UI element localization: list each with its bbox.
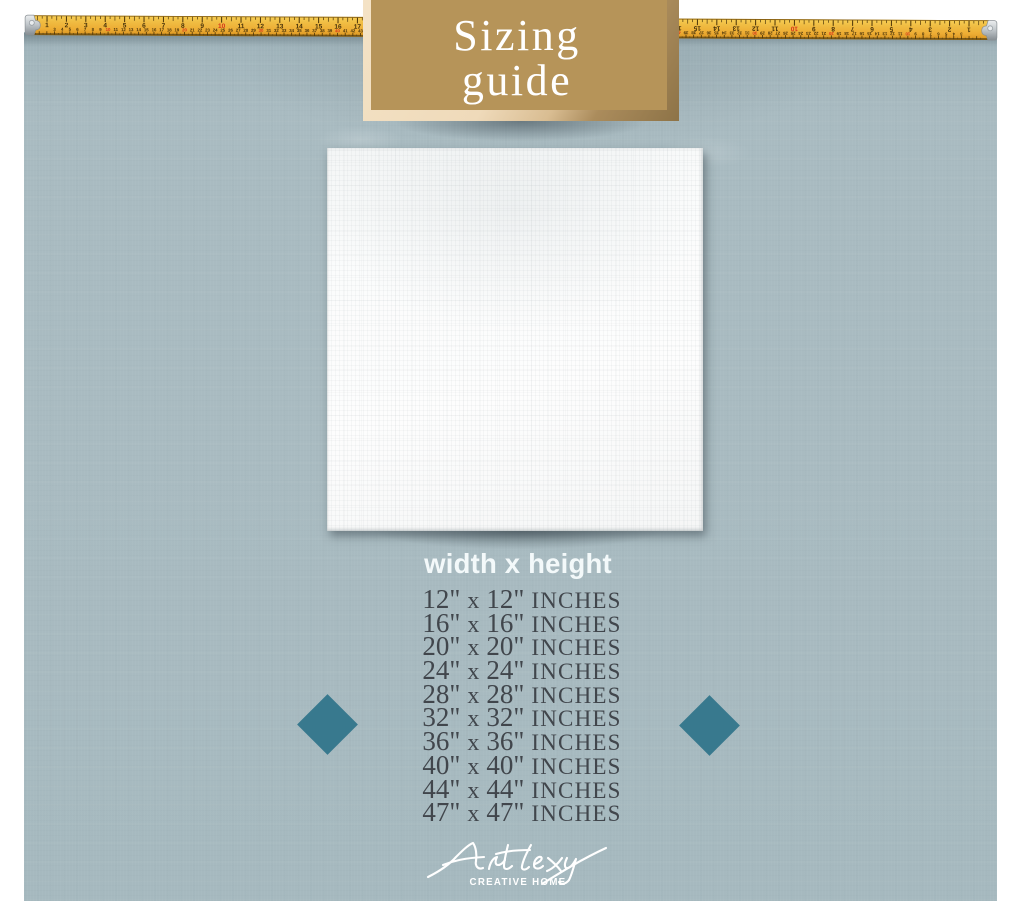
svg-text:37: 37: [698, 30, 703, 35]
svg-text:19: 19: [175, 27, 180, 32]
svg-text:37: 37: [312, 28, 317, 33]
svg-text:11: 11: [771, 25, 778, 32]
svg-text:4: 4: [909, 25, 913, 32]
svg-text:35: 35: [297, 28, 302, 33]
svg-text:7: 7: [850, 25, 854, 32]
svg-text:1: 1: [45, 22, 49, 29]
svg-text:35: 35: [714, 30, 719, 35]
svg-text:20: 20: [182, 27, 187, 32]
svg-text:17: 17: [159, 27, 164, 32]
svg-text:14: 14: [713, 24, 721, 31]
svg-text:15: 15: [693, 24, 701, 31]
svg-text:1: 1: [967, 26, 971, 33]
svg-text:30: 30: [752, 31, 757, 36]
svg-text:22: 22: [813, 31, 818, 36]
svg-text:32: 32: [274, 28, 279, 33]
svg-text:10: 10: [790, 25, 798, 32]
svg-text:29: 29: [760, 31, 765, 36]
svg-text:10: 10: [106, 27, 111, 32]
svg-text:24: 24: [213, 28, 218, 33]
svg-text:34: 34: [721, 30, 726, 35]
svg-text:30: 30: [259, 28, 264, 33]
svg-text:12: 12: [121, 27, 126, 32]
svg-text:31: 31: [744, 31, 749, 36]
svg-text:18: 18: [167, 27, 172, 32]
svg-text:24: 24: [798, 31, 803, 36]
svg-text:40: 40: [335, 28, 340, 33]
svg-text:13: 13: [732, 24, 740, 31]
svg-text:26: 26: [228, 28, 233, 33]
svg-text:38: 38: [320, 28, 325, 33]
svg-text:28: 28: [767, 31, 772, 36]
svg-text:18: 18: [844, 31, 849, 36]
svg-text:11: 11: [113, 27, 118, 32]
svg-text:16: 16: [152, 27, 157, 32]
svg-text:25: 25: [790, 31, 795, 36]
svg-text:33: 33: [282, 28, 287, 33]
svg-text:17: 17: [851, 31, 856, 36]
svg-text:27: 27: [236, 28, 241, 33]
svg-text:31: 31: [266, 28, 271, 33]
svg-text:38: 38: [691, 30, 696, 35]
svg-text:19: 19: [836, 31, 841, 36]
svg-text:34: 34: [289, 28, 294, 33]
svg-text:15: 15: [867, 31, 872, 36]
svg-text:6: 6: [870, 25, 874, 32]
svg-text:26: 26: [782, 31, 787, 36]
svg-text:21: 21: [190, 27, 195, 32]
svg-text:39: 39: [683, 30, 688, 35]
svg-text:42: 42: [350, 28, 355, 33]
svg-text:2: 2: [947, 26, 951, 33]
svg-text:33: 33: [729, 30, 734, 35]
svg-text:16: 16: [859, 31, 864, 36]
svg-text:20: 20: [828, 31, 833, 36]
svg-text:27: 27: [775, 31, 780, 36]
svg-text:10: 10: [905, 31, 910, 36]
svg-text:36: 36: [706, 30, 711, 35]
svg-text:41: 41: [343, 28, 348, 33]
svg-text:13: 13: [882, 31, 887, 36]
svg-text:28: 28: [243, 28, 248, 33]
svg-text:32: 32: [737, 30, 742, 35]
svg-text:9: 9: [812, 25, 816, 32]
svg-text:12: 12: [752, 25, 760, 32]
svg-text:5: 5: [889, 25, 893, 32]
svg-text:13: 13: [129, 27, 134, 32]
svg-text:14: 14: [136, 27, 141, 32]
svg-text:15: 15: [144, 27, 149, 32]
svg-text:8: 8: [831, 25, 835, 32]
svg-text:25: 25: [220, 28, 225, 33]
svg-text:14: 14: [874, 31, 879, 36]
svg-text:12: 12: [890, 31, 895, 36]
svg-text:23: 23: [205, 28, 210, 33]
svg-text:39: 39: [328, 28, 333, 33]
svg-text:36: 36: [305, 28, 310, 33]
svg-text:22: 22: [197, 27, 202, 32]
svg-text:29: 29: [251, 28, 256, 33]
svg-text:11: 11: [897, 31, 902, 36]
svg-text:3: 3: [928, 25, 932, 32]
svg-text:23: 23: [805, 31, 810, 36]
svg-text:21: 21: [821, 31, 826, 36]
